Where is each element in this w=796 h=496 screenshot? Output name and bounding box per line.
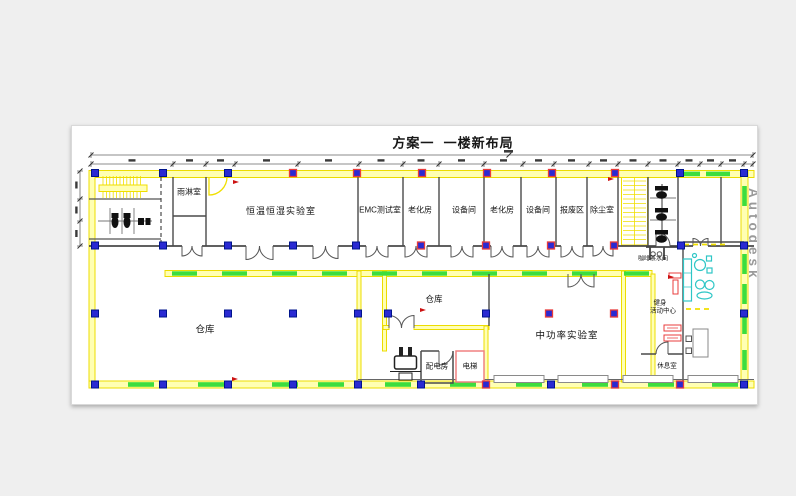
autodesk-watermark: Autodesk — [746, 188, 758, 282]
stair-landing-bar — [99, 185, 147, 192]
electrical-equipment-icon — [390, 347, 421, 380]
rest-room-table — [686, 329, 708, 357]
room-label-aging-room-1: 老化房 — [408, 205, 432, 214]
room-label-coffee-room: 咖啡茶水间 — [638, 257, 668, 264]
room-label-equipment-room-2: 设备间 — [526, 205, 550, 214]
room-label-thermo-lab: 恒温恒湿实验室 — [246, 206, 316, 216]
yellow-door-swing — [209, 177, 227, 195]
dimension-lines — [77, 152, 753, 246]
room-label-power-dist: 配电房 — [426, 363, 449, 372]
room-label-fitness-line2: 活动中心 — [650, 307, 676, 314]
cad-viewer-canvas: 方案一 一楼新布局 雨淋室 恒温恒湿实验室 EMC测试室 老化房 设备间 老化房… — [0, 0, 796, 496]
floorplan-graphics — [72, 126, 757, 404]
door-swings — [182, 232, 708, 365]
room-label-rain-room: 雨淋室 — [177, 187, 201, 196]
room-label-warehouse-main: 仓库 — [195, 326, 214, 337]
room-label-aging-room-2: 老化房 — [490, 205, 514, 214]
room-label-mid-power-lab: 中功率实验室 — [535, 332, 598, 343]
room-label-rest-room: 休息室 — [657, 362, 677, 369]
dimension-tick-marks — [75, 150, 755, 249]
drawing-title: 方案一 一楼新布局 — [392, 133, 513, 152]
break-area-furniture — [684, 254, 715, 302]
structural-columns — [92, 170, 748, 389]
room-label-fitness-line1: 健身 — [654, 299, 667, 306]
room-label-equipment-room-1: 设备间 — [452, 205, 476, 214]
room-label-emc-lab: EMC测试室 — [359, 205, 401, 214]
drawing-sheet: 方案一 一楼新布局 雨淋室 恒温恒湿实验室 EMC测试室 老化房 设备间 老化房… — [71, 125, 758, 405]
room-label-elevator: 电梯 — [463, 363, 478, 372]
room-label-scrap-area: 报废区 — [560, 205, 584, 214]
room-label-warehouse-small: 仓库 — [425, 295, 442, 305]
room-label-dust-room: 除尘室 — [590, 205, 614, 214]
